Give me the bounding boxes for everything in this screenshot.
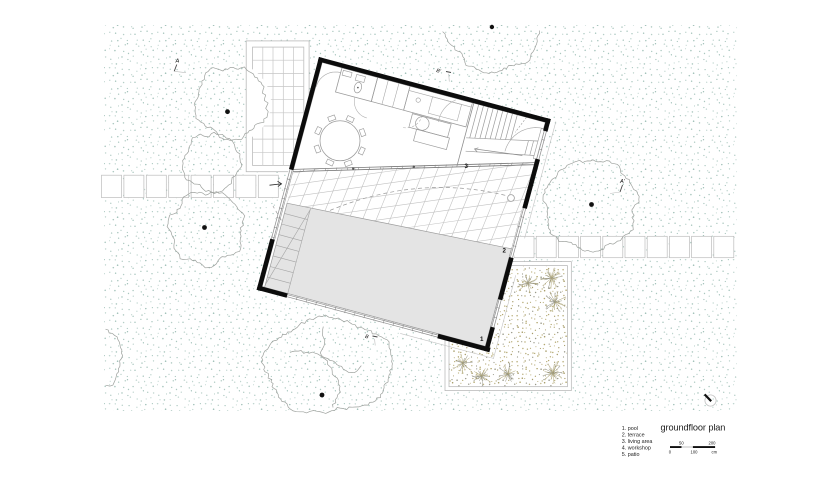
svg-text:groundfloor plan: groundfloor plan: [661, 423, 726, 433]
svg-text:A: A: [175, 58, 180, 64]
svg-text:1: 1: [480, 336, 484, 343]
svg-text:2: 2: [503, 248, 507, 255]
svg-text:3. living area: 3. living area: [622, 439, 653, 445]
svg-text:2. terrace: 2. terrace: [622, 432, 645, 438]
svg-text:cm: cm: [712, 450, 718, 455]
svg-text:3: 3: [465, 163, 469, 170]
svg-text:50: 50: [679, 440, 684, 445]
svg-text:A′: A′: [619, 179, 626, 185]
svg-text:100: 100: [691, 450, 699, 455]
svg-text:4. workshop: 4. workshop: [622, 445, 651, 451]
svg-text:200: 200: [709, 440, 717, 445]
svg-text:1. pool: 1. pool: [622, 426, 638, 432]
svg-text:5. patio: 5. patio: [622, 452, 640, 458]
